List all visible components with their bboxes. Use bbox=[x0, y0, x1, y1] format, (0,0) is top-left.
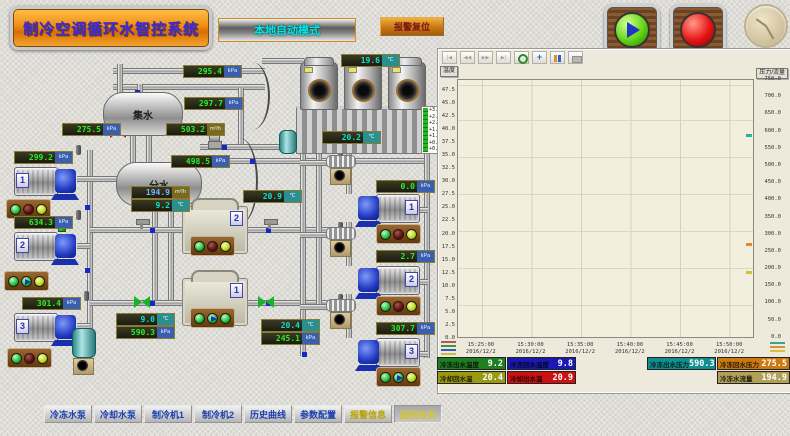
chilled-pump-3-lights bbox=[7, 348, 52, 368]
valve-green[interactable] bbox=[258, 296, 274, 308]
status-cooling-supply-temp: 冷却出水温20.9 bbox=[507, 371, 576, 384]
axis-tick: 17.5 bbox=[438, 244, 455, 250]
axis-tick: 15:30:00 2016/12/2 bbox=[506, 342, 556, 355]
sensor-dot bbox=[150, 228, 155, 233]
axis-tick: 10.0 bbox=[438, 283, 455, 289]
cooling-pump-2-lights bbox=[376, 296, 421, 316]
pump-number: 3 bbox=[405, 344, 418, 359]
axis-tick: 15:45:00 2016/12/2 bbox=[655, 342, 705, 355]
trend-panel: |◀ ◀◀ ▶▶ ▶| + 温度 压力/流量 47.545.042.540.03… bbox=[437, 48, 790, 394]
display-chilled-pump1-pressure: 299.2kPa bbox=[14, 151, 73, 164]
status-lamp bbox=[24, 353, 35, 364]
display-chilled-return-temp: 9.0℃ bbox=[116, 313, 175, 326]
strainer bbox=[326, 227, 356, 240]
axis-tick: 42.5 bbox=[438, 113, 455, 119]
cooling-pump-3[interactable]: 3 bbox=[354, 335, 420, 371]
strainer bbox=[326, 299, 356, 312]
nav-prev-icon[interactable]: ◀◀ bbox=[460, 51, 475, 64]
axis-tick: 15:40:00 2016/12/2 bbox=[605, 342, 655, 355]
status-lamp bbox=[37, 353, 48, 364]
chiller-number: 2 bbox=[230, 211, 243, 226]
nav-alarm-info[interactable]: 报警信息 bbox=[344, 405, 392, 423]
legend-swatch bbox=[441, 345, 456, 347]
axis-tick: 450.0 bbox=[757, 179, 781, 185]
x-axis-ticks: 15:25:00 2016/12/215:30:00 2016/12/215:3… bbox=[456, 342, 754, 355]
pump-head bbox=[55, 234, 76, 258]
pump-head bbox=[358, 196, 379, 220]
status-lamp bbox=[380, 229, 391, 240]
legend-swatch bbox=[441, 353, 456, 355]
pump-number: 3 bbox=[16, 319, 29, 334]
status-lamp bbox=[207, 241, 218, 252]
axis-tick: 400.0 bbox=[757, 196, 781, 202]
pipe-segment bbox=[146, 134, 152, 164]
collector-tank-label: 集水 bbox=[133, 107, 153, 122]
axis-tick: 47.5 bbox=[438, 87, 455, 93]
legend-swatch bbox=[441, 341, 456, 343]
display-chilled-main-pressure: 590.3kPa bbox=[116, 326, 175, 339]
scada-screen: 制冷空调循环水智控系统 本地自动模式 报警复位 bbox=[0, 0, 790, 436]
makeup-unit bbox=[279, 130, 297, 154]
sensor-dot bbox=[85, 205, 90, 210]
strainer bbox=[326, 155, 356, 168]
fan-unit bbox=[73, 358, 94, 375]
nav-last-icon[interactable]: ▶| bbox=[496, 51, 511, 64]
axis-tick: 32.5 bbox=[438, 165, 455, 171]
axis-tick: 100.0 bbox=[757, 299, 781, 305]
status-chilled-return-pressure: 冷冻回水压力275.5 bbox=[717, 357, 790, 370]
status-lamp bbox=[380, 372, 391, 383]
status-lamp bbox=[34, 276, 45, 287]
fan-icon bbox=[396, 79, 419, 102]
status-lamp bbox=[220, 241, 231, 252]
axis-tick: 550.0 bbox=[757, 145, 781, 151]
nav-chiller-1[interactable]: 制冷机1 bbox=[144, 405, 192, 423]
axis-tick: 37.5 bbox=[438, 139, 455, 145]
pipe-segment bbox=[168, 202, 174, 302]
mode-display: 本地自动模式 bbox=[218, 18, 356, 42]
status-lamp bbox=[380, 301, 391, 312]
cooling-pump-3-lights bbox=[376, 367, 421, 387]
chiller-pipe-cap bbox=[191, 198, 239, 210]
tower-indicator bbox=[392, 67, 401, 73]
display-chilled-pump2-pressure: 634.3kPa bbox=[14, 216, 73, 229]
axis-tick: 300.0 bbox=[757, 231, 781, 237]
clock-icon bbox=[744, 4, 788, 48]
sensor-dot bbox=[85, 268, 90, 273]
axis-tick: 150.0 bbox=[757, 282, 781, 288]
nav-return-home[interactable]: 返回主页 bbox=[394, 405, 442, 423]
display-supply-pressure-2: 297.7kPa bbox=[184, 97, 243, 110]
print-icon[interactable] bbox=[568, 51, 583, 64]
chiller-number: 1 bbox=[230, 283, 243, 298]
y-right-ticks: 750.0700.0650.0600.0550.0500.0450.0400.0… bbox=[757, 76, 781, 340]
axis-tick: 350.0 bbox=[757, 214, 781, 220]
pump-number: 1 bbox=[405, 200, 418, 215]
display-cooling-pump3-pressure: 307.7kPa bbox=[376, 322, 435, 335]
axis-tick: 25.0 bbox=[438, 204, 455, 210]
control-valve[interactable] bbox=[208, 134, 220, 148]
pan-icon[interactable]: + bbox=[532, 51, 547, 64]
axis-tick: 45.0 bbox=[438, 100, 455, 106]
chilled-pump-3[interactable]: 3 bbox=[14, 310, 80, 346]
valve-manual[interactable] bbox=[264, 219, 276, 229]
zoom-in-icon[interactable] bbox=[514, 51, 529, 64]
chilled-pump-1[interactable]: 1 bbox=[14, 164, 80, 200]
pipe-segment bbox=[152, 202, 158, 302]
cooling-pump-1[interactable]: 1 bbox=[354, 191, 420, 227]
tower-indicator bbox=[348, 67, 357, 73]
pipe-arc bbox=[252, 62, 270, 130]
status-lamp bbox=[21, 276, 32, 287]
legend-right bbox=[770, 342, 785, 352]
expansion-vessel bbox=[72, 328, 96, 358]
status-chilled-supply-temp: 冷冻出水温度9.2 bbox=[437, 357, 506, 370]
status-lamp bbox=[8, 276, 19, 287]
status-lamp bbox=[406, 229, 417, 240]
sensor-dot bbox=[250, 159, 255, 164]
axis-tick: 27.5 bbox=[438, 191, 455, 197]
status-chilled-return-temp: 冷冻回水温度9.8 bbox=[507, 357, 576, 370]
cooling-tower-1 bbox=[300, 62, 338, 110]
pause-icon[interactable] bbox=[550, 51, 565, 64]
axis-tick: 35.0 bbox=[438, 152, 455, 158]
marker-chilled-return-pressure bbox=[746, 243, 752, 246]
axis-tick: 50.0 bbox=[757, 317, 781, 323]
fan-unit bbox=[330, 168, 351, 185]
fan-unit bbox=[330, 312, 351, 329]
legend-swatch bbox=[770, 342, 785, 344]
status-lamp bbox=[207, 313, 218, 324]
axis-tick: 200.0 bbox=[757, 265, 781, 271]
pipe-segment bbox=[262, 58, 304, 64]
cooling-pump-1-lights bbox=[376, 224, 421, 244]
pump-head bbox=[358, 340, 379, 364]
nav-next-icon[interactable]: ▶▶ bbox=[478, 51, 493, 64]
pipe-segment bbox=[117, 64, 123, 94]
legend-left bbox=[441, 341, 456, 355]
sensor-dot bbox=[222, 145, 227, 150]
status-lamp bbox=[406, 372, 417, 383]
pump-head bbox=[358, 268, 379, 292]
cooling-pump-2[interactable]: 2 bbox=[354, 263, 420, 299]
pump-number: 1 bbox=[16, 173, 29, 188]
display-cooling-pump2-pressure: 2.7kPa bbox=[376, 250, 435, 263]
axis-tick: 15.0 bbox=[438, 257, 455, 263]
status-lamp bbox=[220, 313, 231, 324]
display-tower-inlet-temp: 19.6℃ bbox=[341, 54, 400, 67]
display-cooling-return-temp: 20.9℃ bbox=[243, 190, 302, 203]
display-collector-pressure: 275.5kPa bbox=[62, 123, 121, 136]
alarm-reset-button[interactable]: 报警复位 bbox=[380, 17, 444, 36]
status-lamp bbox=[194, 313, 205, 324]
axis-tick: 0.0 bbox=[757, 334, 781, 340]
chilled-pump-2[interactable]: 2 bbox=[14, 229, 80, 265]
display-cooling-outlet-temp: 20.4℃ bbox=[261, 319, 320, 332]
chart-toolbar: |◀ ◀◀ ▶▶ ▶| + bbox=[442, 51, 583, 64]
nav-chiller-2[interactable]: 制冷机2 bbox=[194, 405, 242, 423]
legend-swatch bbox=[441, 349, 456, 351]
axis-tick: 600.0 bbox=[757, 128, 781, 134]
y-left-ticks: 47.545.042.540.037.535.032.530.027.525.0… bbox=[438, 87, 455, 341]
status-lamp bbox=[194, 241, 205, 252]
y-left-axis-label: 温度 bbox=[440, 66, 458, 77]
stop-icon bbox=[680, 12, 716, 48]
axis-tick: 22.5 bbox=[438, 217, 455, 223]
status-lamp bbox=[393, 229, 404, 240]
display-chilled-pump3-pressure: 301.4kPa bbox=[22, 297, 81, 310]
fan-icon bbox=[352, 79, 375, 102]
status-lamp bbox=[393, 301, 404, 312]
fan-icon bbox=[308, 79, 331, 102]
sensor-dot bbox=[150, 301, 155, 306]
axis-tick: 2.5 bbox=[438, 322, 455, 328]
axis-tick: 15:25:00 2016/12/2 bbox=[456, 342, 506, 355]
fan-unit bbox=[330, 240, 351, 257]
valve-green[interactable] bbox=[134, 296, 150, 308]
status-cooling-return-temp: 冷却回水温20.4 bbox=[437, 371, 506, 384]
marker-chilled-supply-pressure bbox=[746, 134, 752, 137]
nav-history-curve[interactable]: 历史曲线 bbox=[244, 405, 292, 423]
sensor-dot bbox=[302, 352, 307, 357]
pump-head bbox=[55, 169, 76, 193]
pump-number: 2 bbox=[16, 238, 29, 253]
page-title: 制冷空调循环水智控系统 bbox=[10, 6, 212, 50]
chiller-2-lights bbox=[190, 236, 235, 256]
chiller-1-lights bbox=[190, 308, 235, 328]
page-title-text: 制冷空调循环水智控系统 bbox=[23, 18, 199, 39]
axis-tick: 20.0 bbox=[438, 231, 455, 237]
marker-chilled-flow bbox=[746, 271, 752, 274]
axis-tick: 750.0 bbox=[757, 76, 781, 82]
axis-tick: 7.5 bbox=[438, 296, 455, 302]
pipe-segment bbox=[316, 148, 322, 308]
tower-basin bbox=[296, 106, 434, 154]
display-tower-outlet-temp: 20.2℃ bbox=[322, 131, 381, 144]
status-lamp bbox=[10, 204, 21, 215]
nav-chilled-pumps[interactable]: 冷冻水泵 bbox=[44, 405, 92, 423]
pipe-knob bbox=[84, 291, 89, 301]
status-chilled-flow: 冷冻水流量194.9 bbox=[717, 371, 790, 384]
display-main-flow: 503.2m³/h bbox=[166, 123, 225, 136]
cooling-tower-3 bbox=[388, 62, 426, 110]
nav-first-icon[interactable]: |◀ bbox=[442, 51, 457, 64]
chilled-pump-2-lights bbox=[4, 271, 49, 291]
axis-tick: 15:35:00 2016/12/2 bbox=[555, 342, 605, 355]
axis-tick: 40.0 bbox=[438, 126, 455, 132]
display-cooling-pump1-pressure: 0.0kPa bbox=[376, 180, 435, 193]
status-lamp bbox=[36, 204, 47, 215]
display-supply-pressure-1: 295.4kPa bbox=[183, 65, 242, 78]
cooling-tower-2 bbox=[344, 62, 382, 110]
nav-cooling-pumps[interactable]: 冷却水泵 bbox=[94, 405, 142, 423]
axis-tick: 500.0 bbox=[757, 162, 781, 168]
valve-manual[interactable] bbox=[136, 219, 148, 229]
display-return-pressure: 498.5kPa bbox=[171, 155, 230, 168]
legend-swatch bbox=[770, 350, 785, 352]
trend-plot bbox=[457, 79, 754, 338]
tower-indicator bbox=[304, 67, 313, 73]
status-chilled-supply-pressure: 冷冻出水压力590.3 bbox=[647, 357, 716, 370]
legend-swatch bbox=[770, 346, 785, 348]
pump-number: 2 bbox=[405, 272, 418, 287]
display-cooling-main-pressure: 245.1kPa bbox=[261, 332, 320, 345]
axis-tick: 15:50:00 2016/12/2 bbox=[704, 342, 754, 355]
axis-tick: 0.0 bbox=[438, 335, 455, 341]
display-chilled-supply-temp: 9.2℃ bbox=[131, 199, 190, 212]
axis-tick: 12.5 bbox=[438, 270, 455, 276]
pipe-segment bbox=[130, 134, 136, 164]
axis-tick: 250.0 bbox=[757, 248, 781, 254]
status-lamp bbox=[406, 301, 417, 312]
status-lamp bbox=[11, 353, 22, 364]
axis-tick: 650.0 bbox=[757, 110, 781, 116]
pipe-knob bbox=[76, 145, 81, 155]
axis-tick: 30.0 bbox=[438, 178, 455, 184]
axis-tick: 5.0 bbox=[438, 309, 455, 315]
status-lamp bbox=[23, 204, 34, 215]
status-lamp bbox=[393, 372, 404, 383]
axis-tick: 700.0 bbox=[757, 93, 781, 99]
display-chilled-flow: 194.9m³/h bbox=[131, 186, 190, 199]
pipe-knob bbox=[76, 210, 81, 220]
start-icon bbox=[614, 12, 650, 48]
chiller-pipe-cap bbox=[191, 270, 239, 282]
nav-parameter-config[interactable]: 参数配置 bbox=[294, 405, 342, 423]
